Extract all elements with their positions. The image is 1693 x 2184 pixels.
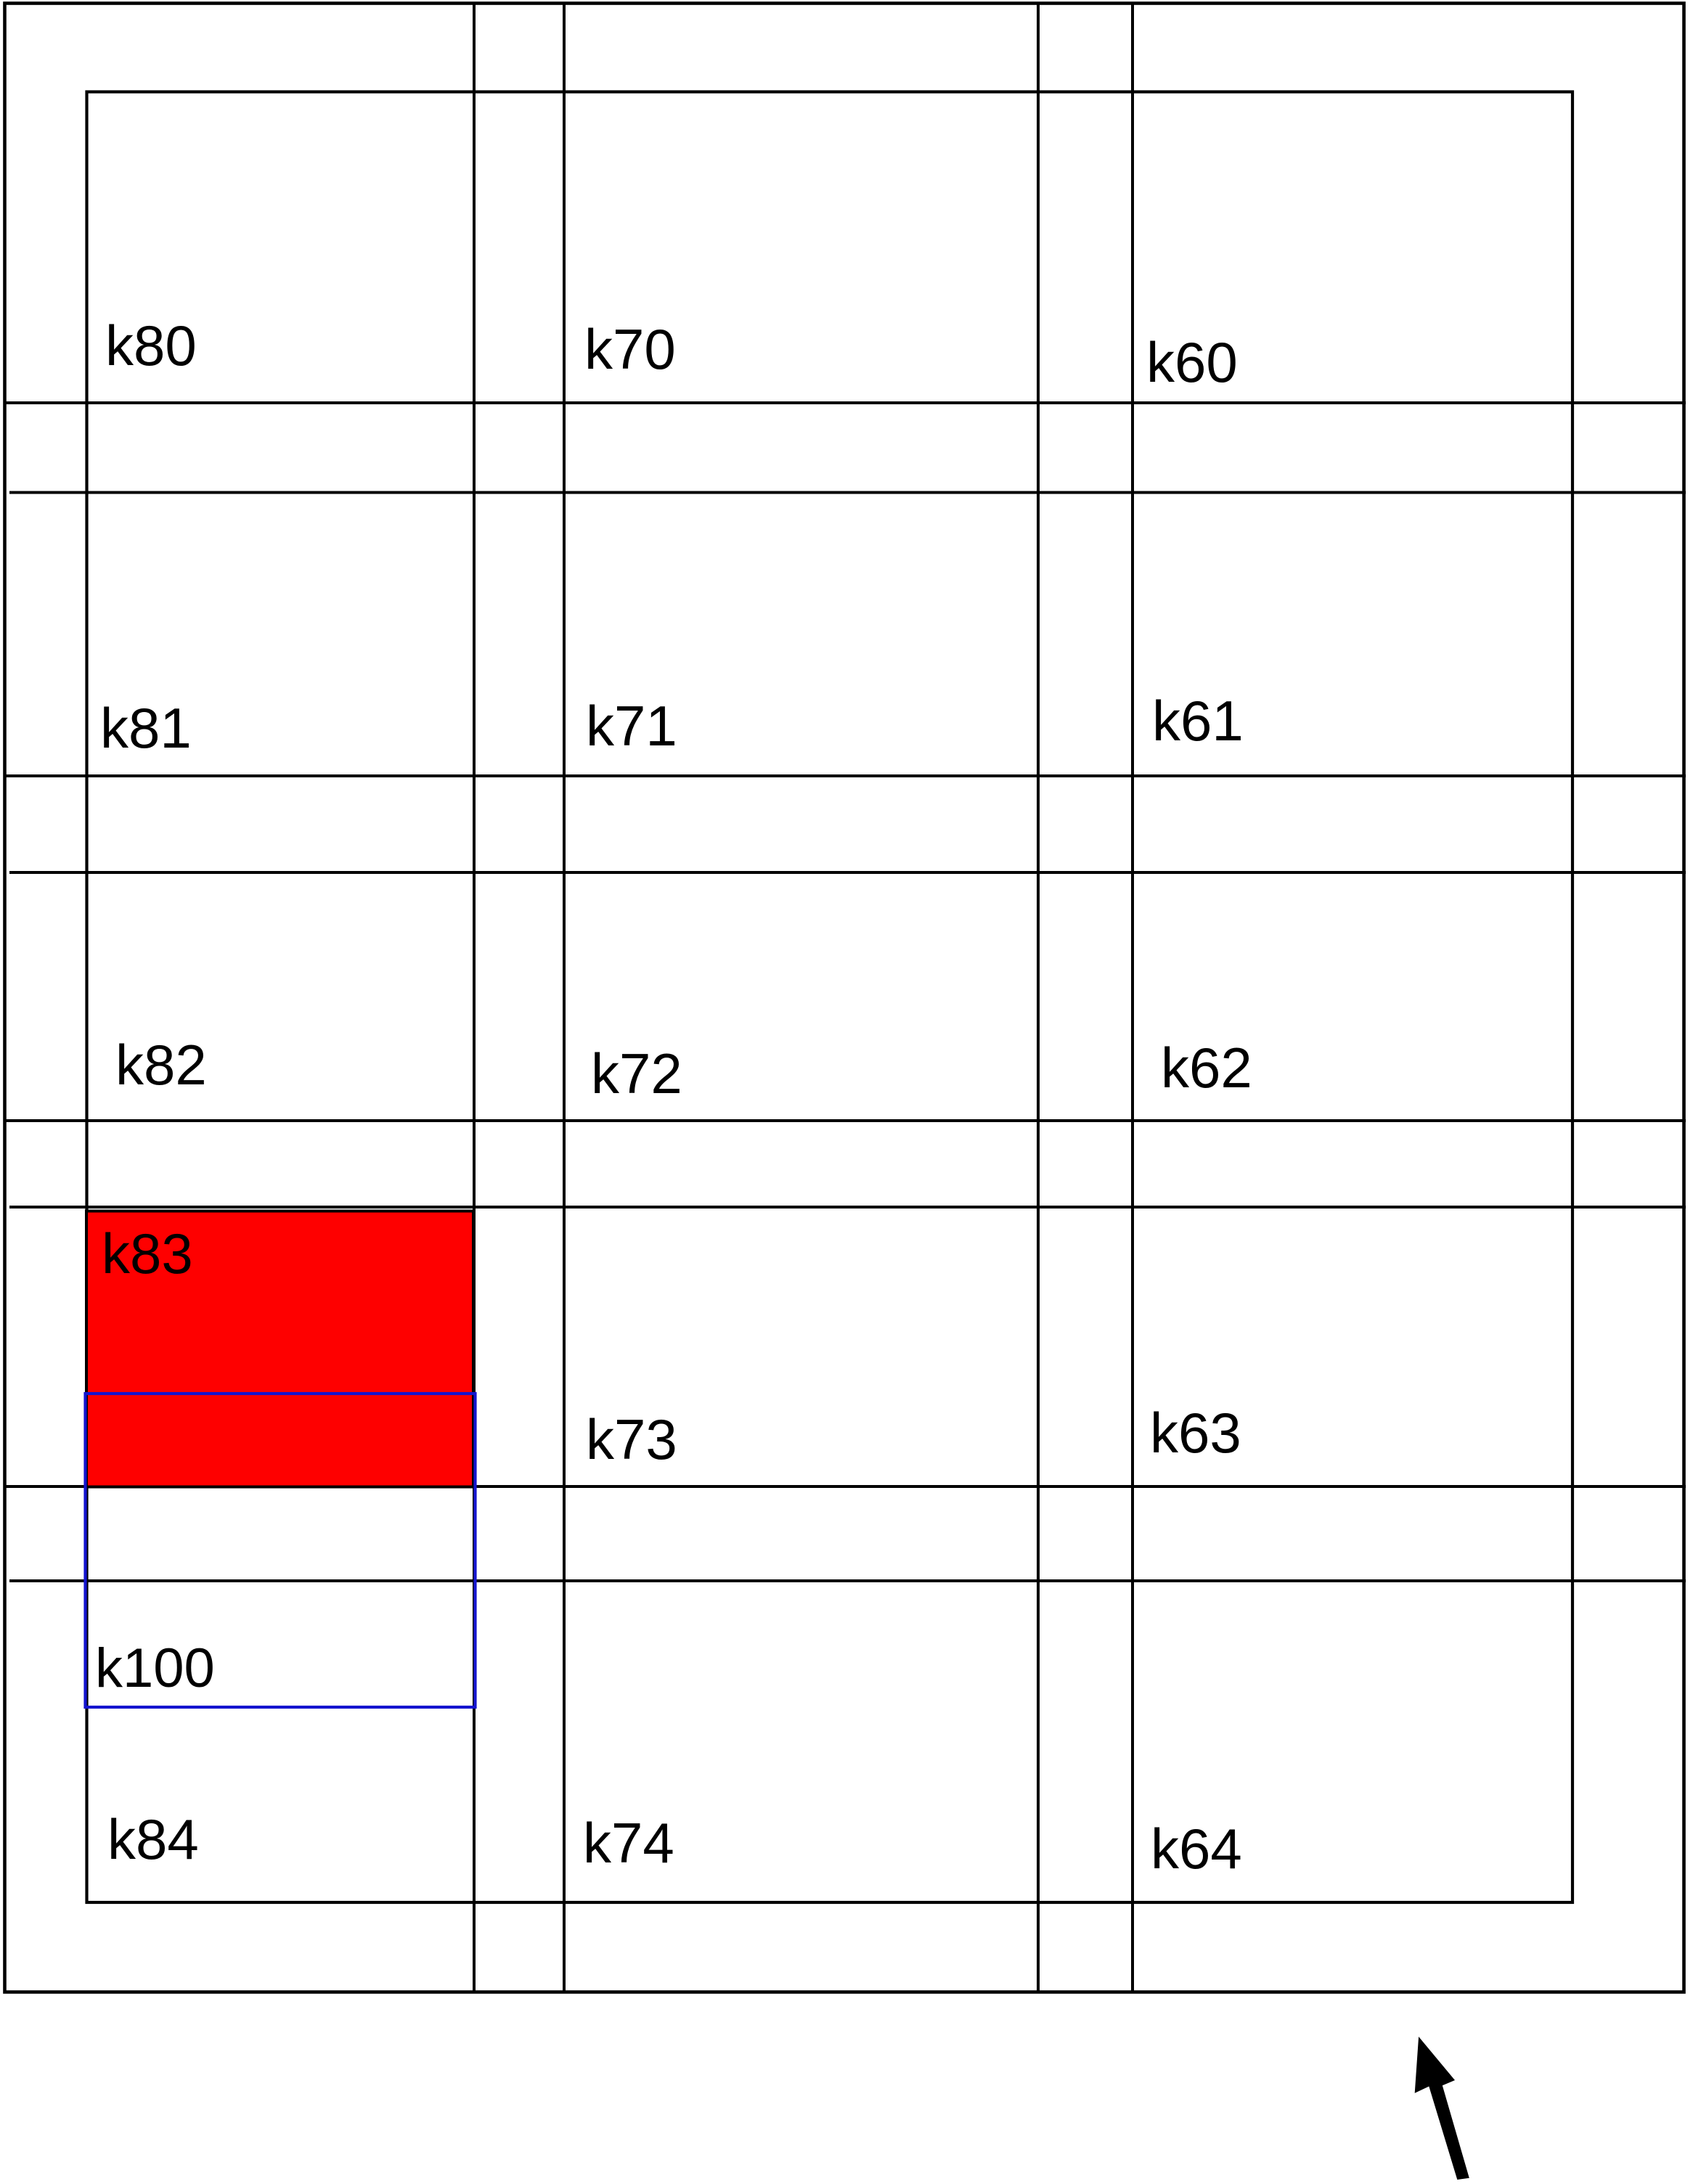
- svg-text:k72: k72: [591, 1042, 682, 1105]
- svg-text:k100: k100: [95, 1637, 215, 1699]
- svg-text:k74: k74: [583, 1811, 674, 1875]
- svg-text:k83: k83: [102, 1222, 193, 1285]
- svg-text:k81: k81: [100, 696, 192, 760]
- svg-text:k73: k73: [586, 1407, 677, 1471]
- svg-text:k61: k61: [1152, 689, 1244, 753]
- svg-text:k64: k64: [1151, 1817, 1242, 1881]
- svg-text:k62: k62: [1161, 1036, 1252, 1100]
- svg-text:k63: k63: [1150, 1401, 1241, 1465]
- svg-text:k82: k82: [115, 1033, 207, 1097]
- svg-text:k60: k60: [1146, 330, 1238, 394]
- svg-text:k80: k80: [105, 314, 197, 377]
- svg-text:k71: k71: [586, 694, 677, 758]
- svg-text:k70: k70: [584, 317, 676, 381]
- svg-text:k84: k84: [107, 1807, 199, 1871]
